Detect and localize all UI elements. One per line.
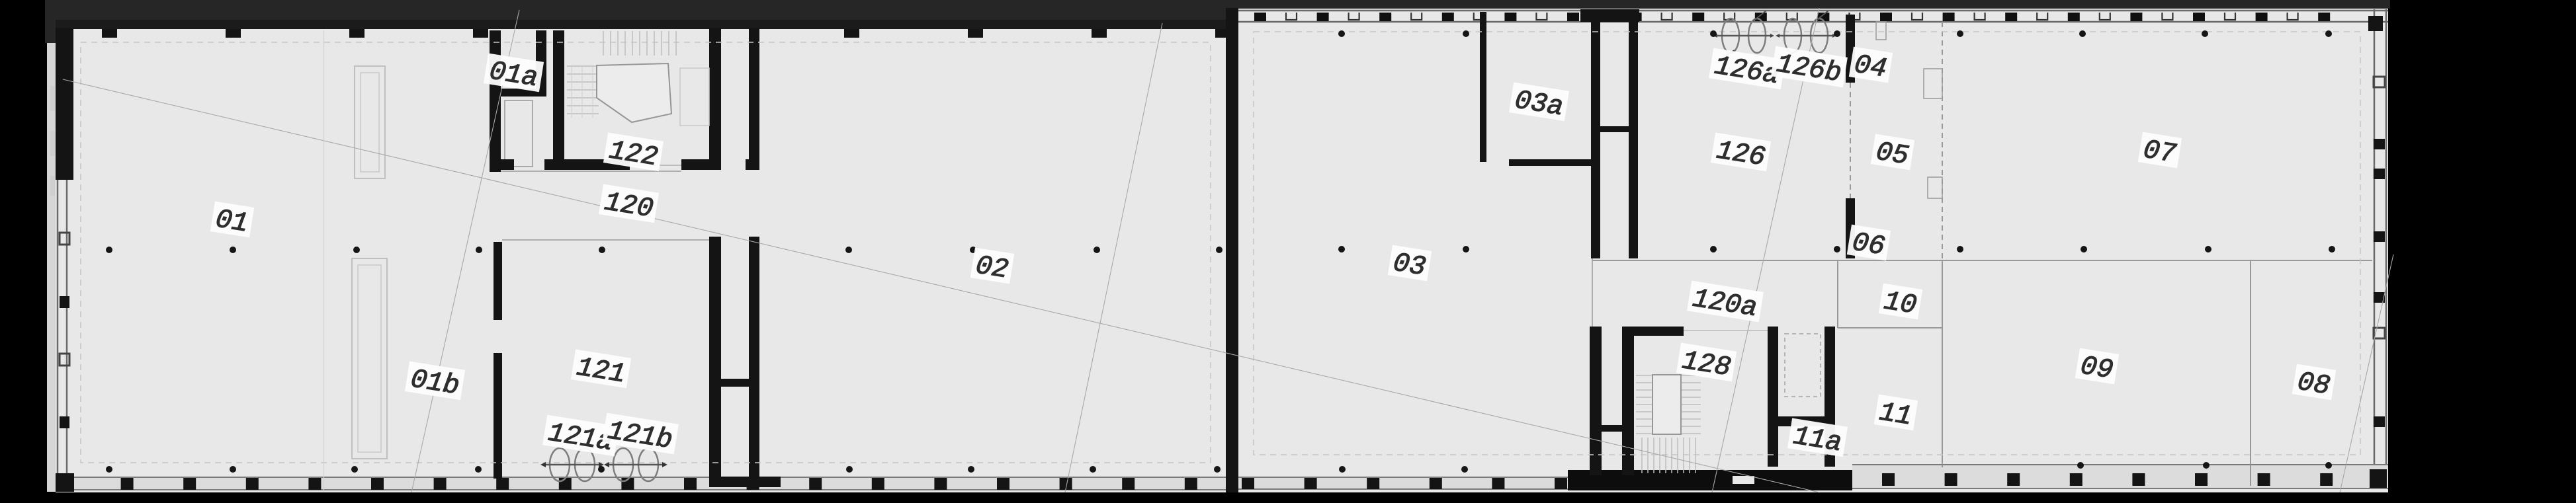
svg-text:03: 03 (1391, 248, 1428, 283)
svg-text:06: 06 (1850, 227, 1887, 262)
svg-text:09: 09 (2078, 351, 2115, 386)
svg-text:02: 02 (973, 251, 1010, 286)
svg-text:10: 10 (1881, 286, 1918, 321)
svg-text:08: 08 (2295, 367, 2332, 402)
svg-text:07: 07 (2141, 135, 2178, 170)
svg-text:01: 01 (213, 204, 250, 239)
svg-text:11: 11 (1877, 397, 1914, 432)
svg-text:05: 05 (1873, 137, 1911, 172)
svg-text:04: 04 (1852, 50, 1889, 85)
